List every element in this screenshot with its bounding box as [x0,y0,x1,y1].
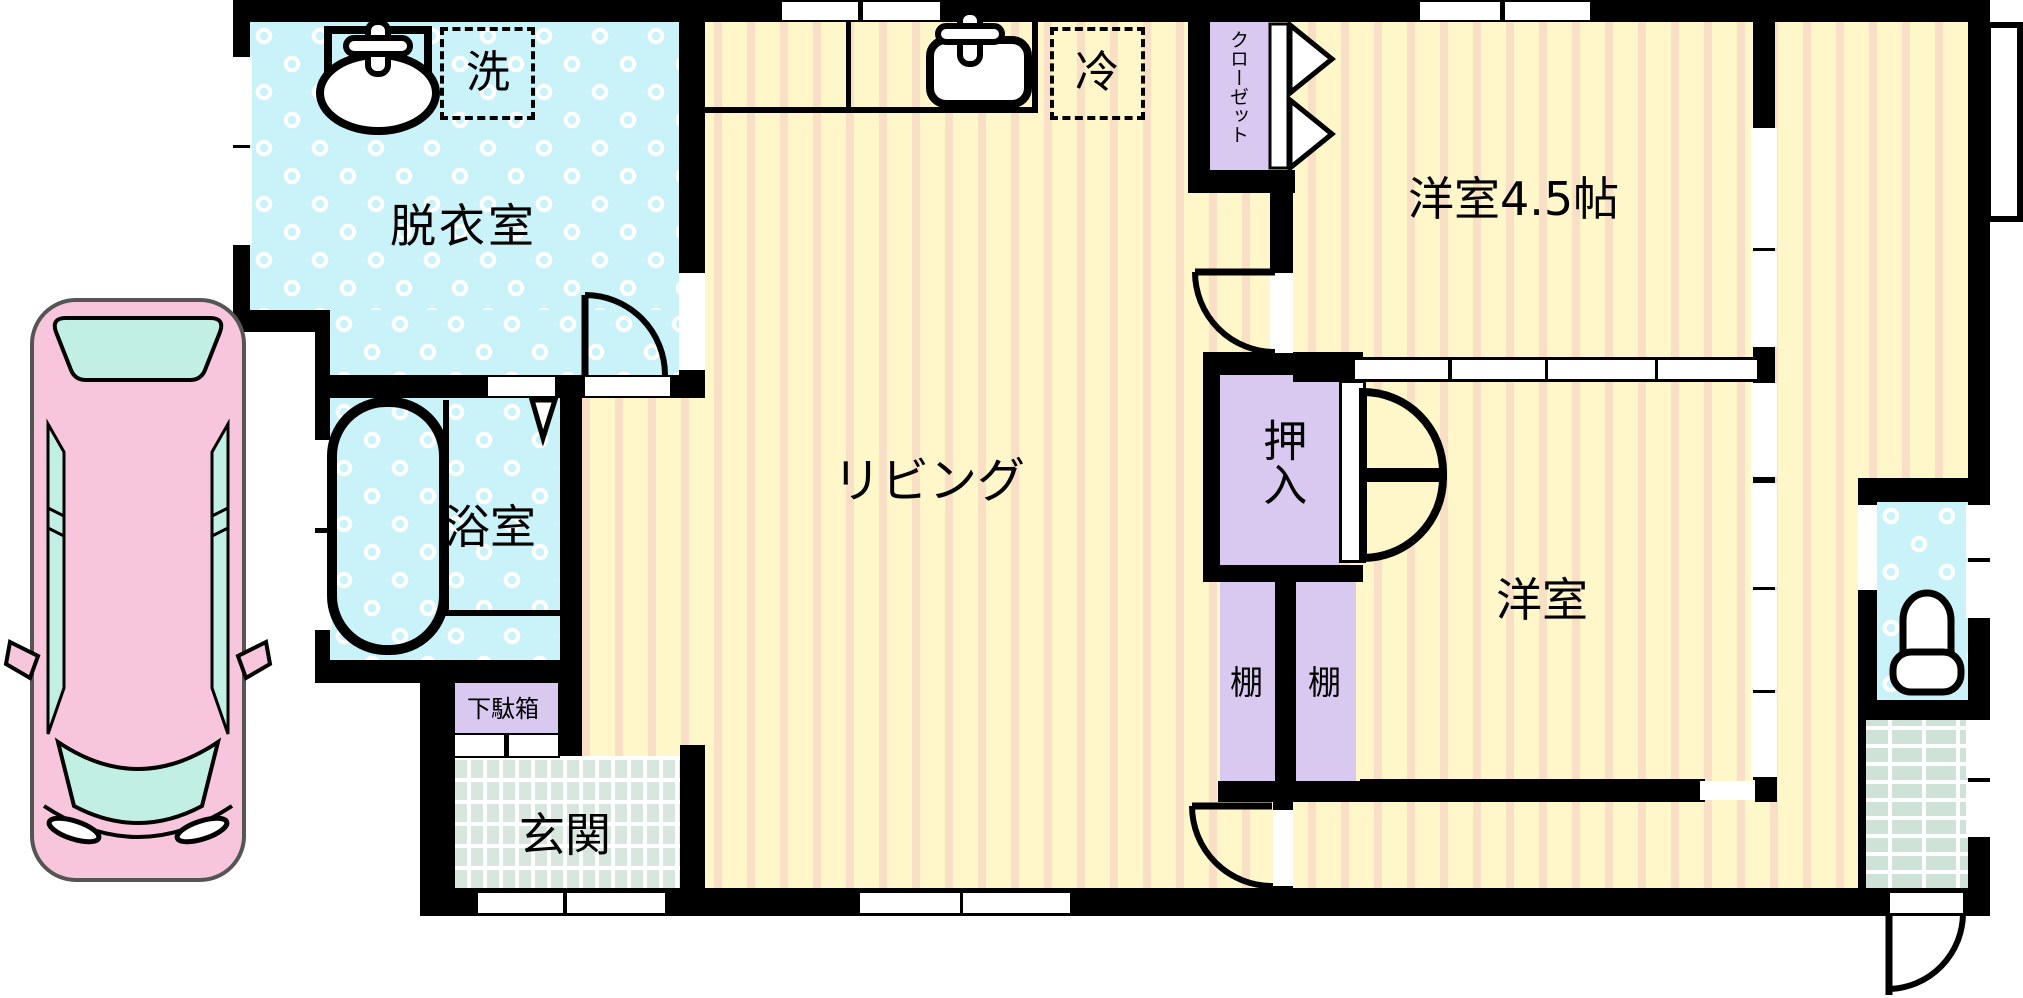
porch-door-gap [1890,893,1963,913]
window-east-porch-1 [1966,720,1992,778]
car-icon [6,300,270,880]
fixture-label-closet: クローゼット [1227,30,1247,166]
sliding-door-45-1 [1355,360,1448,379]
window-top-kitchen-1 [782,2,858,20]
window-east-toilet-2 [1966,562,1992,618]
fixture-label-fridge: 冷 [1075,50,1119,96]
window-east-toilet-1 [1966,505,1992,558]
door-gap-living-room45 [1270,273,1293,353]
room-label-living: リビング [833,456,1025,506]
fixture-label-shelf-left: 棚 [1230,666,1263,701]
fixture-label-shoe-cabinet: 下駄箱 [467,697,539,722]
room-label-western: 洋室 [1496,576,1588,624]
engawa-panel-4 [1751,483,1777,587]
door-gap-hall-living [1273,810,1293,886]
room-label-entrance: 玄関 [519,811,611,859]
window-east-porch-2 [1966,782,1992,837]
sliding-door-45-3 [1548,360,1655,379]
door-gap-bath [488,377,555,396]
front-door-panel-1 [478,893,563,913]
front-door-panel-2 [567,893,665,913]
room-label-western-45: 洋室4.5帖 [1408,175,1619,223]
kitchen-counter-right [1032,22,1038,113]
kitchen-counter-edge [705,107,1037,113]
sliding-door-45-2 [1452,360,1545,379]
oshiire-door-panel [1342,383,1363,560]
engawa-panel-5 [1751,590,1777,690]
fixture-label-washer: 洗 [466,50,510,96]
porch-floor [1858,720,1968,888]
window-top-room45-2 [1505,2,1590,20]
door-gap-dressing [585,377,670,396]
room-label-bathroom: 浴室 [444,503,536,551]
room-label-dressing: 脱衣室 [390,202,537,250]
window-top-room45-1 [1420,2,1500,20]
fixture-label-shelf-right: 棚 [1308,666,1341,701]
sliding-door-45-4 [1658,360,1757,379]
window-west-dressing-1 [231,57,252,145]
window-west-bath-1 [313,440,332,528]
window-bottom-living-2 [963,893,1070,913]
engawa-panel-1 [1751,128,1777,248]
window-west-dressing-2 [231,148,252,245]
window-top-kitchen-2 [863,2,940,20]
engawa-panel-3 [1751,383,1777,477]
bay-window [1985,22,2023,222]
toilet-floor [1877,502,1968,700]
engawa-panel-2 [1751,251,1777,347]
fixture-label-oshiire: 押入 [1257,418,1303,548]
floor-plan: 脱衣室 浴室 玄関 リビング 洋室4.5帖 洋室 洗 冷 クローゼット 押入 棚… [0,0,2023,998]
opening-room-hall [1700,781,1755,800]
window-west-bath-2 [313,533,332,630]
kitchen-counter-divider [846,22,851,113]
engawa-panel-6 [1751,693,1777,777]
window-bottom-living-1 [860,893,960,913]
opening-dressing-living [679,273,705,370]
porch-door-icon [1889,913,1963,995]
toilet-door [1858,505,1877,590]
